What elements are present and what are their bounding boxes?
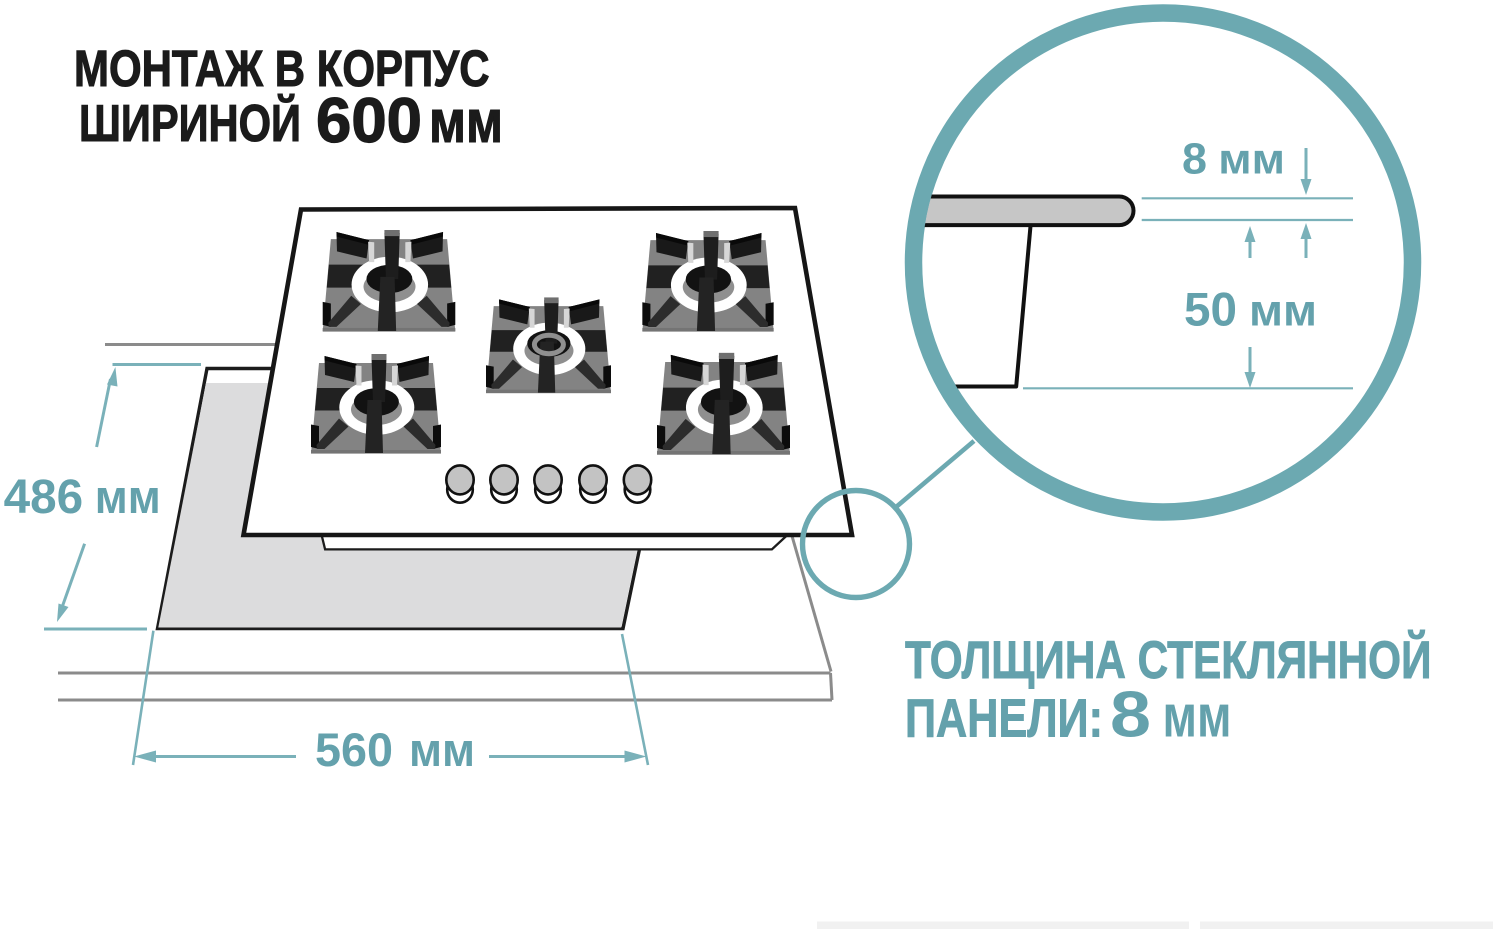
svg-text:мм: мм bbox=[1163, 682, 1232, 749]
svg-text:мм: мм bbox=[1249, 286, 1317, 335]
svg-text:мм: мм bbox=[1218, 135, 1285, 183]
svg-text:8: 8 bbox=[1110, 677, 1151, 750]
svg-text:мм: мм bbox=[429, 88, 503, 155]
svg-text:ШИРИНОЙ: ШИРИНОЙ bbox=[79, 94, 301, 153]
svg-text:ТОЛЩИНА СТЕКЛЯННОЙ: ТОЛЩИНА СТЕКЛЯННОЙ bbox=[905, 629, 1432, 690]
svg-text:486: 486 bbox=[4, 471, 84, 524]
svg-text:600: 600 bbox=[316, 86, 422, 156]
svg-text:мм: мм bbox=[95, 471, 161, 524]
svg-text:мм: мм bbox=[409, 723, 475, 776]
svg-text:МОНТАЖ В КОРПУС: МОНТАЖ В КОРПУС bbox=[74, 40, 490, 97]
svg-text:8: 8 bbox=[1182, 134, 1207, 183]
svg-text:560: 560 bbox=[315, 724, 393, 777]
svg-text:50: 50 bbox=[1184, 282, 1237, 335]
svg-text:ПАНЕЛИ:: ПАНЕЛИ: bbox=[905, 688, 1103, 748]
